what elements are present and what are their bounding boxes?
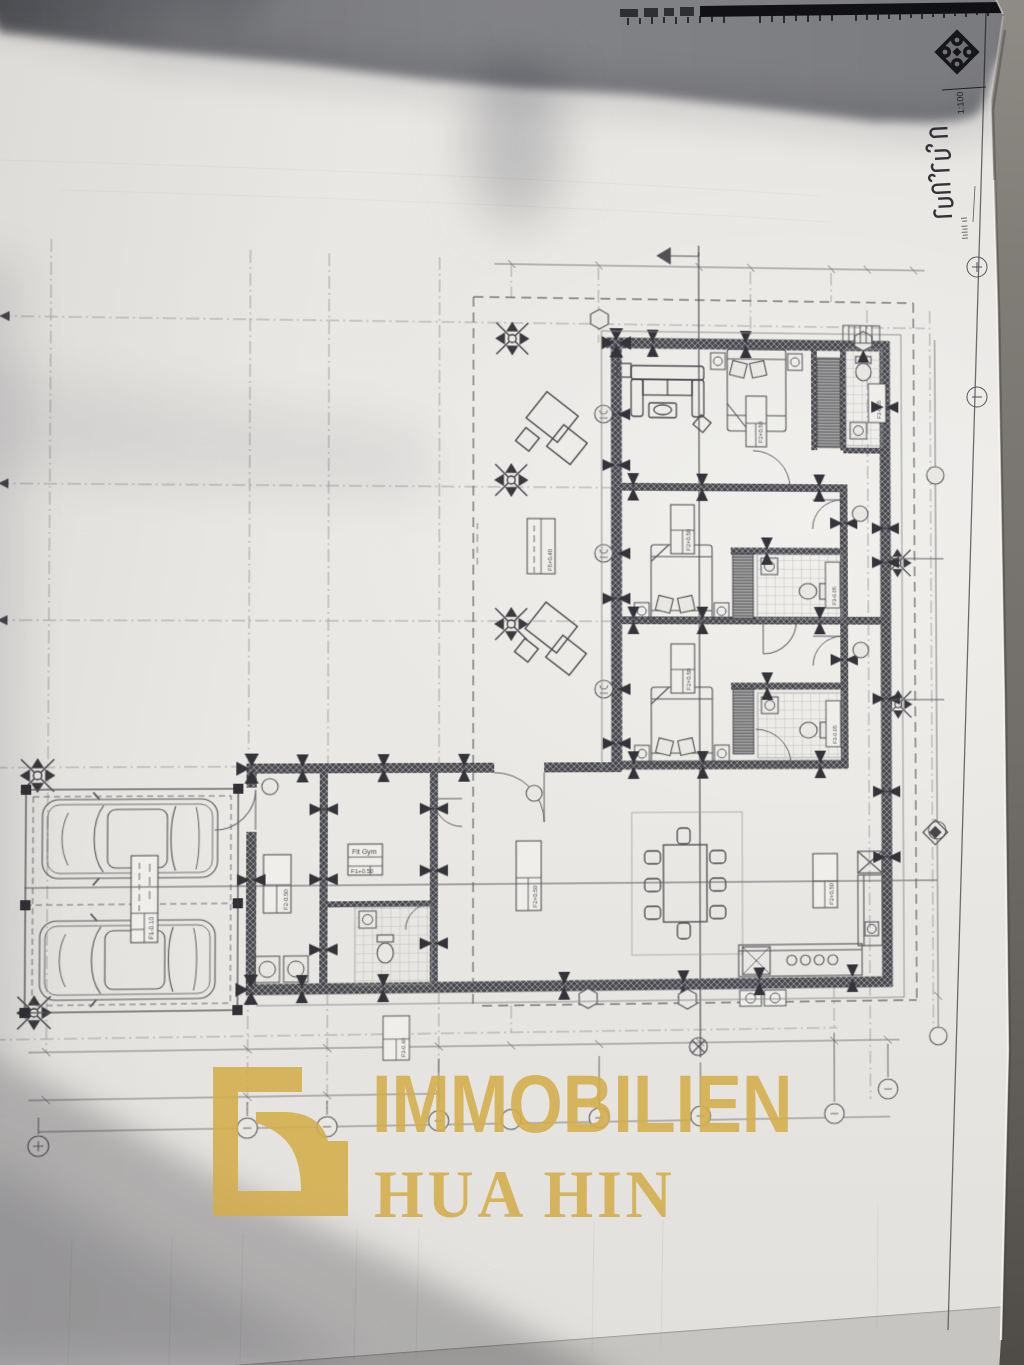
svg-text:HUA HIN: HUA HIN <box>374 1157 676 1232</box>
svg-text:IMMOBILIEN: IMMOBILIEN <box>372 1059 793 1150</box>
